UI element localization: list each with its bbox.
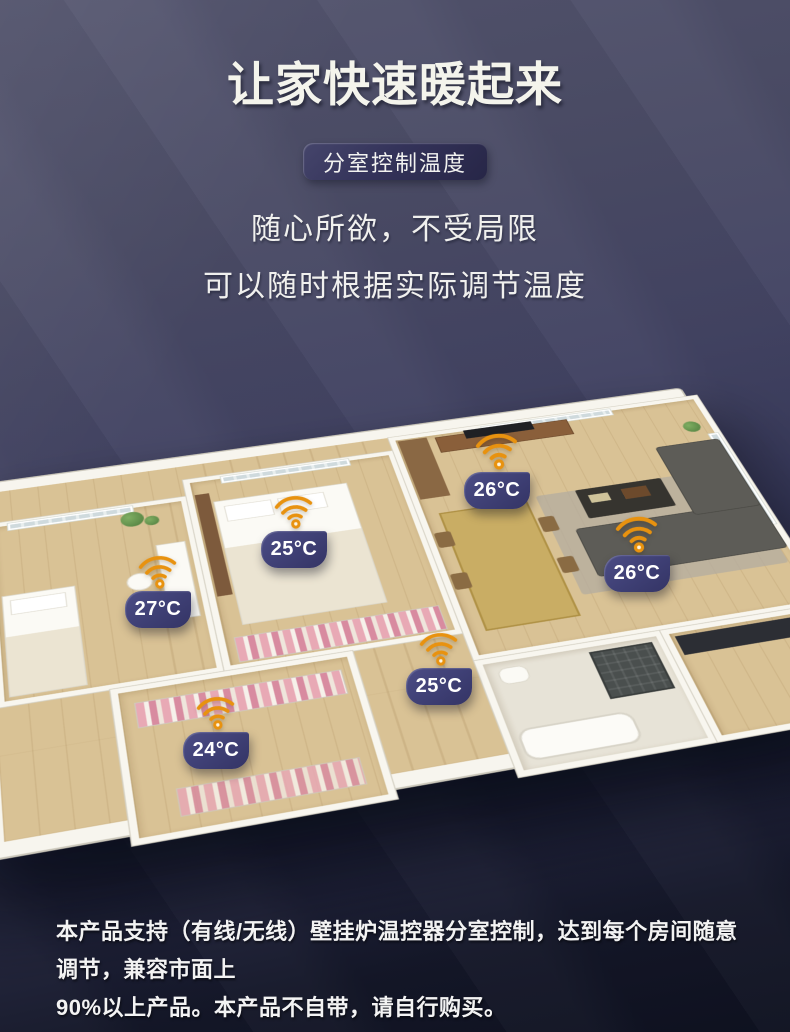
page-title: 让家快速暖起来 <box>0 46 790 115</box>
temp-marker-bedroom-middle: 25°C <box>256 489 332 568</box>
temp-bubble: 26°C <box>604 555 671 592</box>
wifi-signal-icon <box>263 486 325 533</box>
shower <box>589 642 676 699</box>
temp-bubble: 26°C <box>464 472 531 509</box>
temp-bubble: 24°C <box>183 732 250 769</box>
wifi-signal-icon <box>602 505 673 557</box>
subtitle-line-2: 可以随时根据实际调节温度 <box>0 261 790 305</box>
temp-marker-cloakroom: 24°C <box>178 690 254 769</box>
temp-marker-bedroom-left: 27°C <box>120 549 196 628</box>
bed <box>2 586 88 698</box>
wifi-signal-icon <box>462 422 533 474</box>
footer-line-1: 本产品支持（有线/无线）壁挂炉温控器分室控制，达到每个房间随意调节，兼容市面上 <box>56 913 756 989</box>
footer-note: 本产品支持（有线/无线）壁挂炉温控器分室控制，达到每个房间随意调节，兼容市面上 … <box>56 913 756 1027</box>
wifi-signal-icon <box>408 623 470 670</box>
temp-bubble: 25°C <box>261 531 328 568</box>
header: 让家快速暖起来 分室控制温度 随心所欲，不受局限 可以随时根据实际调节温度 <box>0 0 790 305</box>
bathtub <box>516 710 645 762</box>
wifi-signal-icon <box>127 546 189 593</box>
temp-bubble: 27°C <box>125 591 192 628</box>
subtitle-line-1: 随心所欲，不受局限 <box>0 204 790 248</box>
wifi-signal-icon <box>185 687 247 734</box>
apartment-floorplan <box>0 389 790 861</box>
footer-line-2: 90%以上产品。本产品不自带，请自行购买。 <box>56 989 756 1027</box>
temp-bubble: 25°C <box>406 668 473 705</box>
badge-wrap: 分室控制温度 <box>0 143 790 180</box>
temp-marker-living-right: 26°C <box>599 509 675 592</box>
temp-marker-living-upper: 26°C <box>459 426 535 509</box>
toilet <box>496 664 532 685</box>
tray <box>620 485 651 499</box>
room-control-badge: 分室控制温度 <box>303 143 487 180</box>
tray <box>588 492 612 502</box>
temp-marker-bathroom: 25°C <box>401 626 477 705</box>
